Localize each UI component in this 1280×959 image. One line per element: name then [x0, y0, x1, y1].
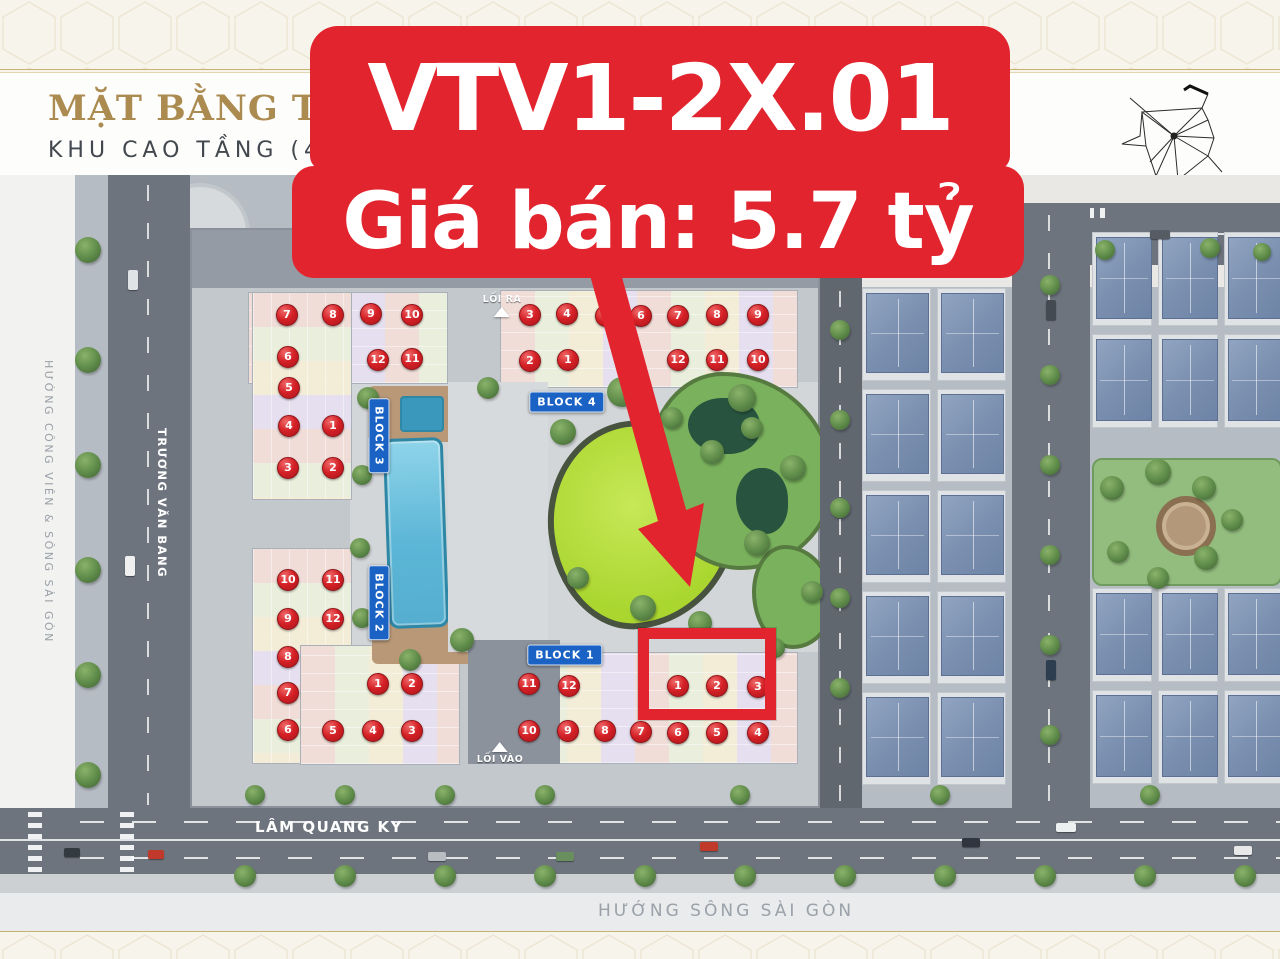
gold-divider-bottom [0, 931, 1280, 932]
entrance-lối-ra: LỐI RA [483, 294, 522, 317]
road-center-line [0, 839, 1280, 841]
garden-pond-2 [736, 468, 788, 534]
unit-marker-b1-6: 6 [667, 722, 689, 744]
unit-marker-b2-9: 9 [277, 608, 299, 630]
unit-marker-b3-5: 5 [278, 377, 300, 399]
unit-marker-b4-10: 10 [747, 349, 769, 371]
unit-marker-b4-3: 3 [519, 304, 541, 326]
unit-marker-b4-5: 5 [595, 305, 617, 327]
river-direction-label: HƯỚNG SÔNG SÀI GÒN [598, 901, 854, 921]
unit-marker-b3-10: 10 [401, 304, 423, 326]
kids-pool [400, 396, 444, 432]
unit-marker-b4-9: 9 [747, 304, 769, 326]
hex-pattern-bottom [0, 933, 1280, 959]
unit-marker-b3-12: 12 [367, 349, 389, 371]
south-sidewalk [0, 874, 1280, 893]
highlight-rectangle [638, 628, 776, 720]
unit-marker-b4-7: 7 [667, 305, 689, 327]
unit-marker-b3-4: 4 [278, 415, 300, 437]
unit-marker-b3-11: 11 [401, 348, 423, 370]
entrance-label: LỐI RA [483, 294, 522, 305]
unit-marker-b2-8: 8 [277, 646, 299, 668]
unit-marker-b1-8: 8 [594, 720, 616, 742]
entrance-arrow-icon [494, 307, 510, 317]
price-banner-code: VTV1-2X.01 [310, 26, 1010, 170]
unit-marker-b1-11: 11 [518, 673, 540, 695]
crosswalk-west2 [120, 812, 134, 872]
left-road-dash [147, 185, 149, 805]
block-label-block-2: BLOCK 2 [369, 565, 390, 640]
unit-marker-b1-9: 9 [557, 720, 579, 742]
entrance-lối-vào: LỐI VÀO [477, 742, 524, 765]
unit-marker-b3-3: 3 [277, 457, 299, 479]
street-name-lam-quang-ky: LÂM QUANG KY [255, 818, 403, 836]
block-label-block-3: BLOCK 3 [369, 398, 390, 473]
unit-marker-b4-4: 4 [556, 303, 578, 325]
unit-marker-b2-10: 10 [277, 569, 299, 591]
unit-marker-b3-7: 7 [276, 304, 298, 326]
central-walk [448, 382, 548, 652]
price-banner-price: Giá bán: 5.7 tỷ [292, 166, 1024, 278]
unit-marker-b2-4: 4 [362, 720, 384, 742]
main-pool [383, 437, 450, 629]
park-fountain [1156, 496, 1216, 556]
street-truong-van-bang [108, 175, 190, 815]
unit-marker-b1-4: 4 [747, 722, 769, 744]
entrance-label: LỐI VÀO [477, 754, 524, 765]
unit-marker-b4-8: 8 [706, 304, 728, 326]
unit-marker-b2-2: 2 [401, 673, 423, 695]
entrance-arrow-icon [492, 742, 508, 752]
unit-marker-b2-5: 5 [322, 720, 344, 742]
street-name-truong-van-bang: TRƯƠNG VĂN BANG [155, 428, 169, 578]
unit-marker-b4-1: 1 [557, 349, 579, 371]
unit-marker-b4-12: 12 [667, 349, 689, 371]
hex-band-bottom [0, 933, 1280, 959]
road-dash-2 [80, 857, 1280, 859]
unit-marker-b3-9: 9 [360, 303, 382, 325]
unit-marker-b2-1: 1 [367, 673, 389, 695]
street-villa-west [820, 205, 862, 810]
left-direction-label: HƯỚNG CÔNG VIÊN & SÔNG SÀI GÒN [42, 360, 55, 644]
villa-west-dash [839, 215, 841, 805]
unit-marker-b2-12: 12 [322, 608, 344, 630]
unit-marker-b4-11: 11 [706, 349, 728, 371]
unit-marker-b4-2: 2 [519, 350, 541, 372]
unit-marker-b1-7: 7 [630, 721, 652, 743]
street-villa-mid [1012, 205, 1090, 810]
unit-marker-b1-10: 10 [518, 720, 540, 742]
block-label-block-4: BLOCK 4 [529, 392, 604, 413]
unit-marker-b2-11: 11 [322, 569, 344, 591]
unit-marker-b3-2: 2 [322, 457, 344, 479]
garden-pond-1 [688, 398, 760, 454]
masterplan-poster: MẶT BẰNG TỔNG T KHU CAO TẦNG (4-24) HƯỚN… [0, 0, 1280, 959]
crosswalk-west [28, 812, 42, 872]
street-lam-quang-ky [0, 808, 1280, 874]
unit-marker-b1-12: 12 [558, 675, 580, 697]
unit-marker-b2-6: 6 [277, 719, 299, 741]
unit-marker-b3-6: 6 [277, 346, 299, 368]
riverside-strip [0, 175, 75, 808]
unit-marker-b4-6: 6 [630, 305, 652, 327]
unit-marker-b1-5: 5 [706, 722, 728, 744]
unit-marker-b3-1: 1 [322, 415, 344, 437]
block-label-block-1: BLOCK 1 [527, 645, 602, 666]
unit-marker-b2-7: 7 [277, 682, 299, 704]
villa-mid-dash [1048, 215, 1050, 805]
unit-marker-b2-3: 3 [401, 720, 423, 742]
unit-marker-b3-8: 8 [322, 304, 344, 326]
